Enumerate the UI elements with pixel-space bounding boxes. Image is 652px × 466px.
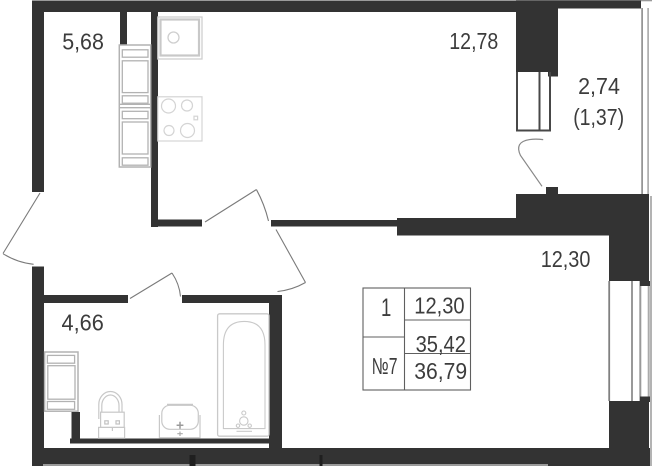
svg-text:35,42: 35,42 bbox=[416, 331, 466, 357]
svg-text:1: 1 bbox=[381, 294, 391, 322]
svg-text:12,30: 12,30 bbox=[541, 246, 591, 272]
svg-text:2,74: 2,74 bbox=[578, 73, 620, 99]
svg-text:(1,37): (1,37) bbox=[573, 104, 624, 130]
svg-text:12,30: 12,30 bbox=[414, 292, 464, 318]
svg-text:№7: №7 bbox=[372, 353, 398, 379]
svg-text:36,79: 36,79 bbox=[414, 358, 467, 384]
svg-text:5,68: 5,68 bbox=[62, 28, 104, 54]
svg-text:4,66: 4,66 bbox=[62, 310, 104, 336]
svg-text:12,78: 12,78 bbox=[449, 28, 498, 54]
